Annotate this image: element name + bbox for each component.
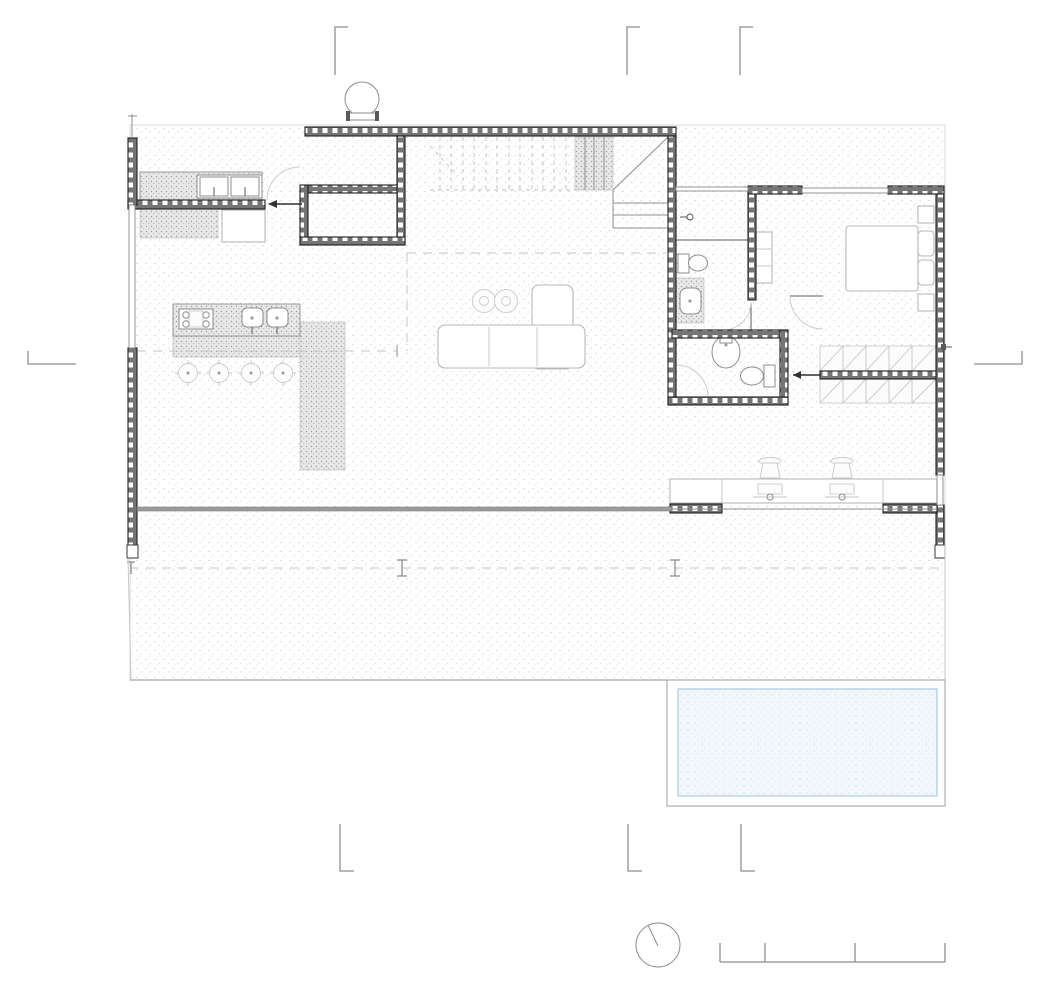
stove-grid [189,311,203,327]
wall-powder-right [748,193,756,300]
island-sink-1-drain [250,316,253,319]
stool-4-dot [282,372,285,375]
section-marker-bottom-1 [340,824,354,871]
side-table-1-inner [480,297,489,306]
hall-shelves [756,232,772,283]
section-marker-left [28,351,76,364]
wall-utility-left [300,185,308,245]
wall-bath-bottom [668,397,788,405]
wall-stair-right [668,136,676,405]
toilet-2-bowl [741,367,764,385]
section-marker-top-3 [740,27,753,75]
wall-utility-bottom [300,237,405,245]
chimney-cap-2 [375,111,379,121]
wall-cap-left-bottom [127,545,138,558]
island-sink-2-drain [275,316,278,319]
side-table-2-inner [502,297,511,306]
window-hall [676,187,748,191]
plan-drawing [0,0,1046,1000]
window-right [937,475,943,505]
section-marker-top-2 [627,27,640,75]
window-left [129,205,135,348]
section-marker-right [974,351,1022,364]
stool-1-dot [187,372,190,375]
wall-utility-top [308,185,397,193]
toilet-1-bowl [689,255,708,271]
wall-right-upper [936,194,944,475]
wall-left-lower [128,348,137,558]
wall-left-upper [128,138,137,205]
section-marker-top-1 [335,27,348,75]
wall-kitchen-north [128,200,265,209]
bath-sink-drain [725,344,728,347]
vanity-station-1 [758,484,782,494]
section-marker-bottom-2 [628,824,642,871]
stool-3-dot [250,372,253,375]
chimney-circle [345,82,379,116]
wall-cap-right-bottom [935,545,945,558]
north-arrow-needle [648,925,658,946]
window-bedroom-north [802,188,888,193]
sofa-body [438,325,585,368]
nightstand-1 [918,206,934,223]
bed-pillow-2 [918,260,934,285]
powder-basin-drain [688,299,691,302]
bed [846,226,918,291]
kitchen-counter-w [140,209,218,238]
wall-bath-top [672,330,788,338]
chair-2-seat [832,463,852,478]
stool-2-dot [218,372,221,375]
kitchen-fridge [222,210,265,242]
wall-bath-right [780,330,788,405]
nightstand-2 [918,294,934,311]
glass-south-main [137,507,672,511]
toilet-2-tank [764,365,775,387]
wall-bedroom-north-east [888,186,944,194]
pool-water [678,689,937,796]
vanity-station-2 [830,484,854,494]
wall-top-living [305,127,676,136]
wall-bedroom-north-west [748,186,802,194]
bed-pillow-1 [918,231,934,256]
wall-closet-mid [820,371,936,379]
island-leg [300,322,345,470]
wall-section-tick-square [941,344,946,350]
chimney-cap-1 [346,111,350,121]
chair-1-seat [760,463,780,478]
toilet-1-tank [678,254,689,273]
wall-utility-right [397,136,405,245]
floor-plan-canvas [0,0,1046,1000]
vanity-counter [670,479,937,503]
chimney-base [349,113,376,120]
section-marker-bottom-3 [741,824,755,871]
